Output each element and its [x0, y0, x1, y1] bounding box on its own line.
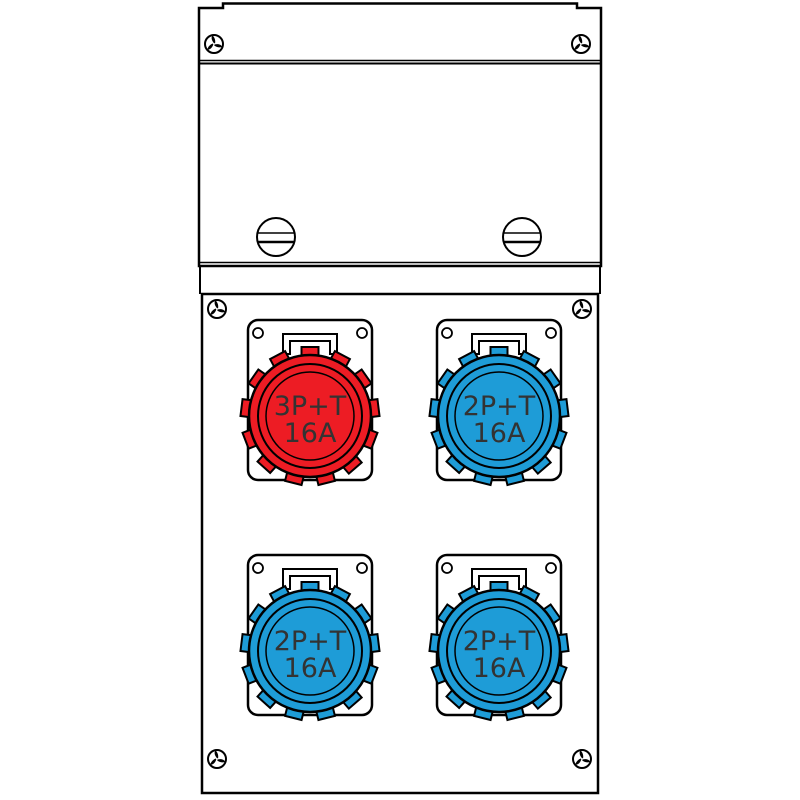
drawing-svg: 3P+T 16A 2P+T 16A 2P+T 16A 2P+T 16A: [0, 0, 800, 800]
socket-module-top-right: 2P+T 16A: [429, 320, 568, 485]
socket-module-top-left: 3P+T 16A: [240, 320, 379, 485]
tri-wing-screw-icon-lid-left: [205, 35, 223, 53]
tri-wing-screw-icon-panel-bottom-right: [573, 750, 591, 768]
tri-wing-screw-icon-panel-top-right: [573, 300, 591, 318]
tri-wing-screw-icon-panel-top-left: [208, 300, 226, 318]
socket-label-line2: 16A: [473, 653, 526, 684]
socket-label-line2: 16A: [284, 418, 337, 449]
socket-label-line2: 16A: [284, 653, 337, 684]
socket-label-line2: 16A: [473, 418, 526, 449]
socket-module-bottom-left: 2P+T 16A: [240, 555, 379, 720]
tri-wing-screw-icon-lid-right: [572, 35, 590, 53]
distribution-box-drawing: 3P+T 16A 2P+T 16A 2P+T 16A 2P+T 16A: [0, 0, 800, 800]
slotted-screw-icon-left: [257, 218, 295, 256]
tri-wing-screw-icon-panel-bottom-left: [208, 750, 226, 768]
slotted-screw-icon-right: [503, 218, 541, 256]
socket-module-bottom-right: 2P+T 16A: [429, 555, 568, 720]
